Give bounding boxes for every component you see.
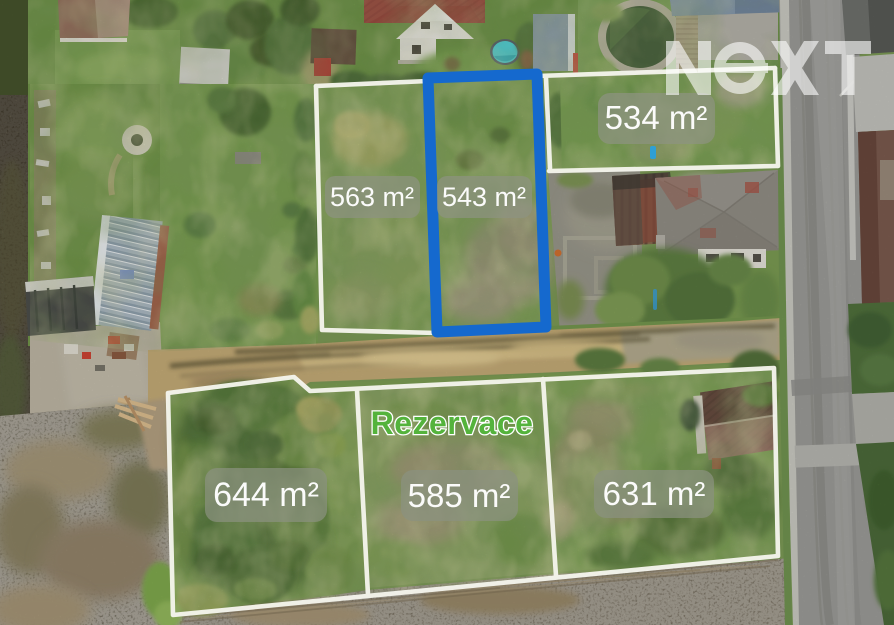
svg-text:534 m²: 534 m² [605,99,708,136]
svg-text:563 m²: 563 m² [330,182,414,212]
svg-text:631 m²: 631 m² [603,475,706,512]
svg-text:Rezervace: Rezervace [371,405,534,441]
svg-text:644 m²: 644 m² [213,476,319,514]
svg-text:543 m²: 543 m² [442,182,526,212]
svg-text:585 m²: 585 m² [408,477,511,514]
